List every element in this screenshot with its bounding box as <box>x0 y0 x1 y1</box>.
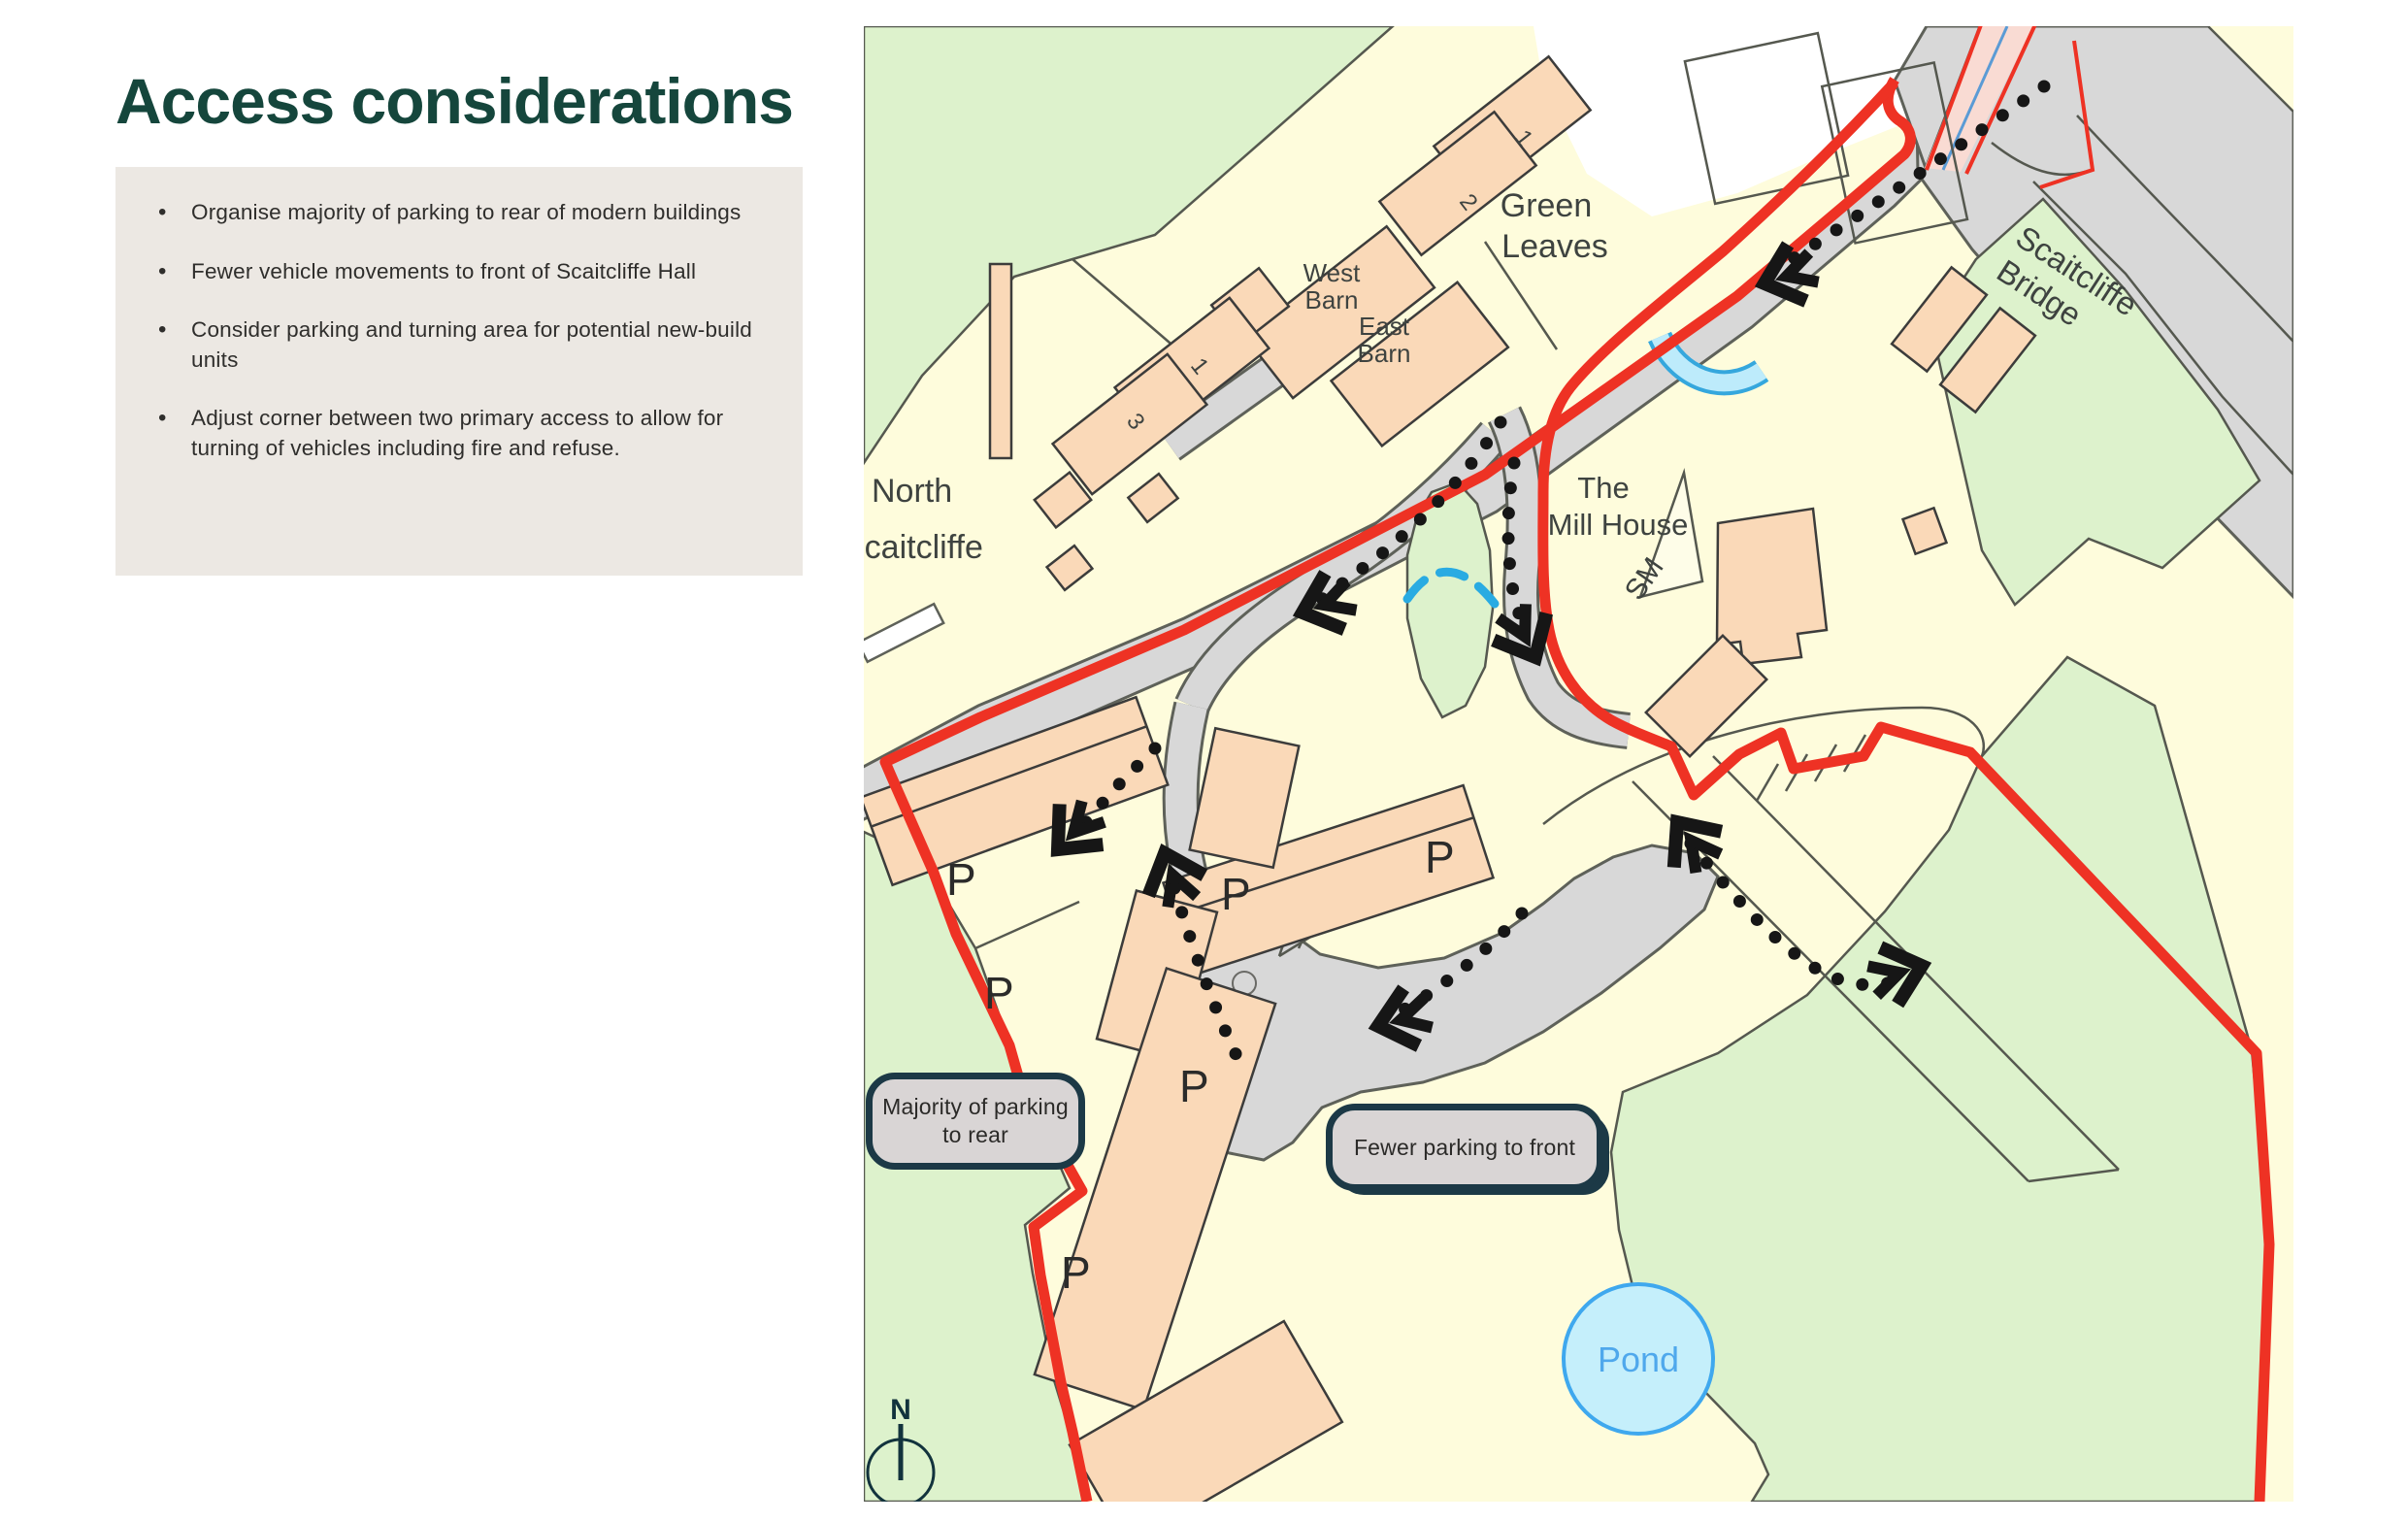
site-plan-svg: Pond Green Leaves West Barn East Barn No… <box>864 26 2293 1502</box>
note-bullet: Organise majority of parking to rear of … <box>139 198 774 228</box>
callout-parking-rear: Majority of parking to rear <box>866 1073 1085 1170</box>
page-title: Access considerations <box>115 64 793 138</box>
parking-marker: P <box>1179 1061 1209 1111</box>
parking-marker: P <box>946 854 976 905</box>
notes-list: Organise majority of parking to rear of … <box>139 198 774 464</box>
mill-house-label: The <box>1577 471 1629 505</box>
access-considerations-page: { "page": { "title": "Access considerati… <box>0 0 2408 1522</box>
svg-text:Mill House: Mill House <box>1548 508 1689 542</box>
site-plan-map: Pond Green Leaves West Barn East Barn No… <box>864 26 2293 1502</box>
svg-text:Leaves: Leaves <box>1501 228 1608 265</box>
callout-parking-front-text: Fewer parking to front <box>1354 1134 1575 1162</box>
west-barn-label: West <box>1303 258 1362 287</box>
note-bullet: Adjust corner between two primary access… <box>139 404 774 463</box>
svg-text:Barn: Barn <box>1358 339 1411 368</box>
svg-text:Barn: Barn <box>1305 285 1359 314</box>
pond-label: Pond <box>1598 1340 1679 1379</box>
parking-marker: P <box>1425 832 1455 882</box>
note-bullet: Fewer vehicle movements to front of Scai… <box>139 257 774 287</box>
green-leaves-label: Green <box>1501 187 1593 224</box>
compass-n-label: N <box>890 1394 911 1426</box>
notes-panel: Organise majority of parking to rear of … <box>115 167 803 576</box>
east-barn-label: East <box>1359 312 1410 341</box>
callout-parking-front: Fewer parking to front <box>1326 1104 1603 1191</box>
note-bullet: Consider parking and turning area for po… <box>139 315 774 375</box>
parking-marker: P <box>1221 869 1251 919</box>
parking-marker: P <box>1061 1247 1091 1298</box>
svg-text:Scaitcliffe: Scaitcliffe <box>864 529 983 566</box>
parking-marker: P <box>984 968 1014 1018</box>
north-scaitcliffe-label: North <box>872 473 952 510</box>
callout-parking-rear-text: Majority of parking to rear <box>873 1093 1078 1149</box>
